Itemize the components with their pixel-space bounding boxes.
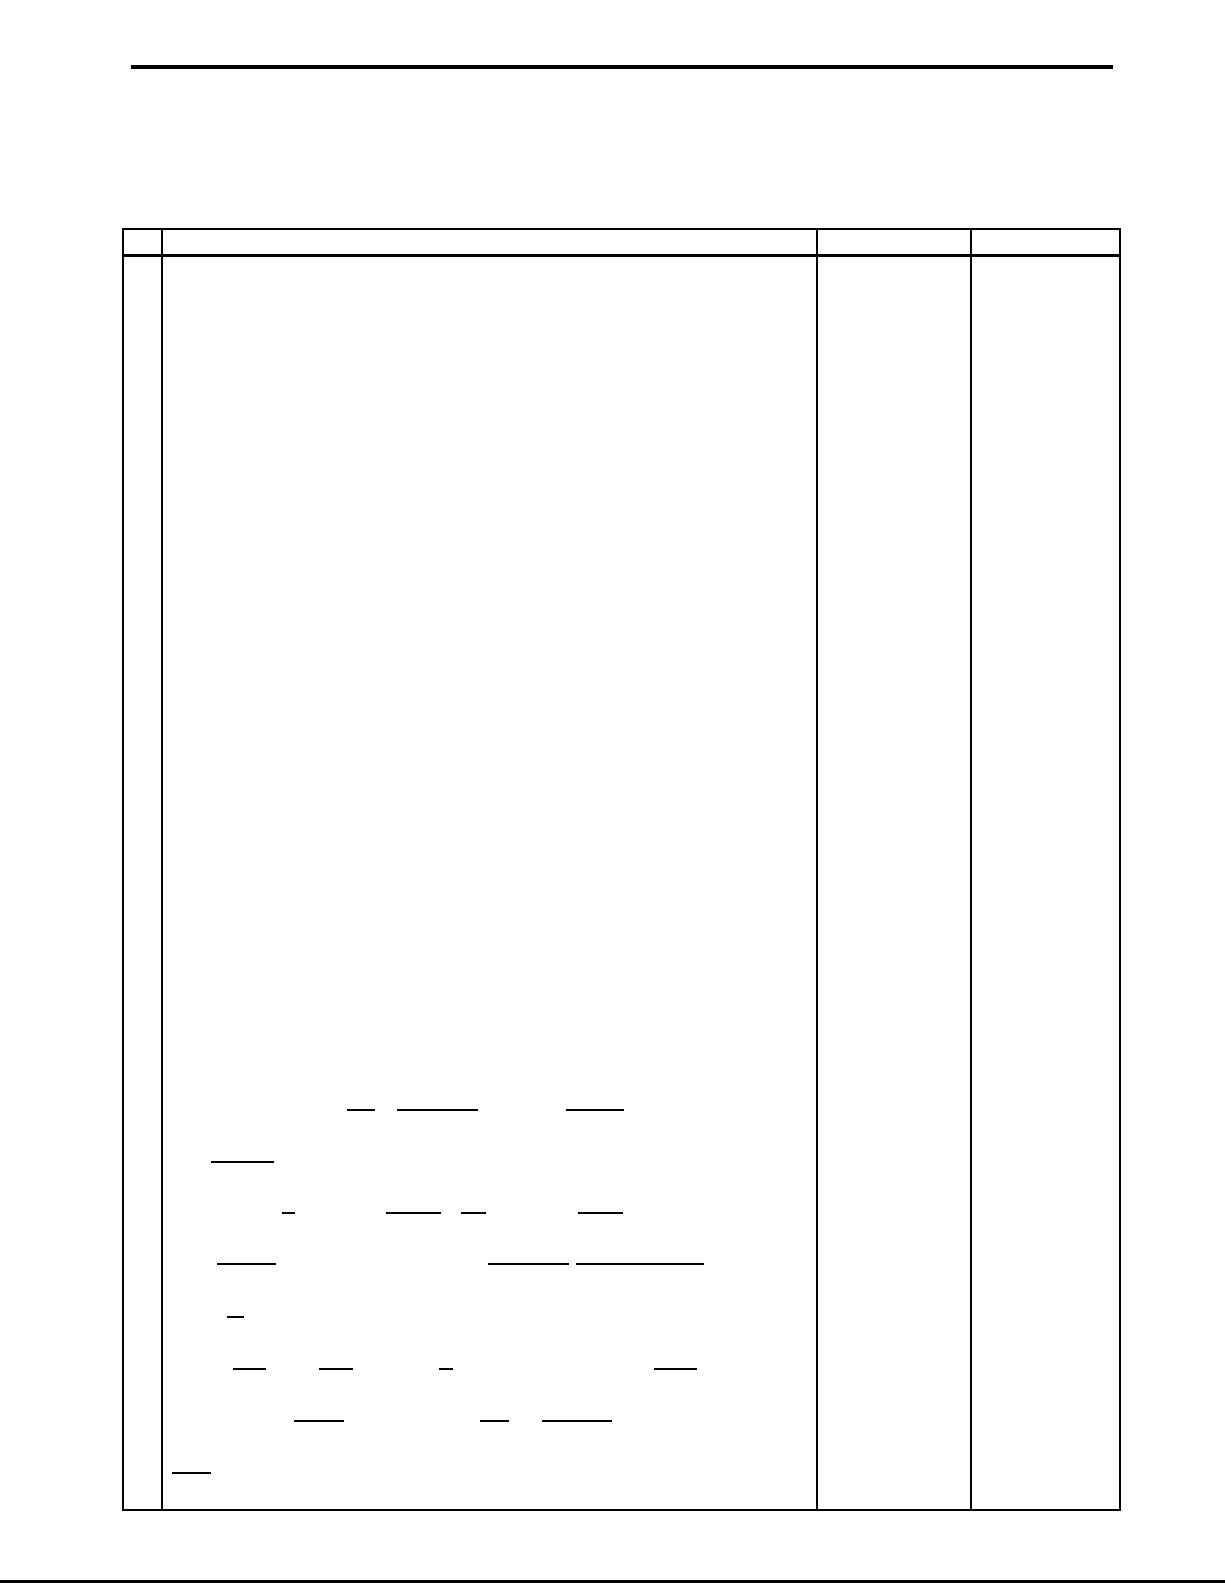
- header-cell-answer-column-1: [816, 228, 970, 254]
- top-rule: [131, 65, 1113, 69]
- body-cell-answer-column-2: [970, 254, 1121, 1511]
- document-page: [0, 0, 1225, 1585]
- body-cell-answer-column-1: [816, 254, 970, 1511]
- body-cell-content-column: [161, 254, 816, 1511]
- header-cell-number-column: [122, 228, 161, 254]
- header-cell-content-column: [161, 228, 816, 254]
- bottom-rule: [0, 1580, 1225, 1583]
- header-cell-answer-column-2: [970, 228, 1121, 254]
- body-cell-number-column: [122, 254, 161, 1511]
